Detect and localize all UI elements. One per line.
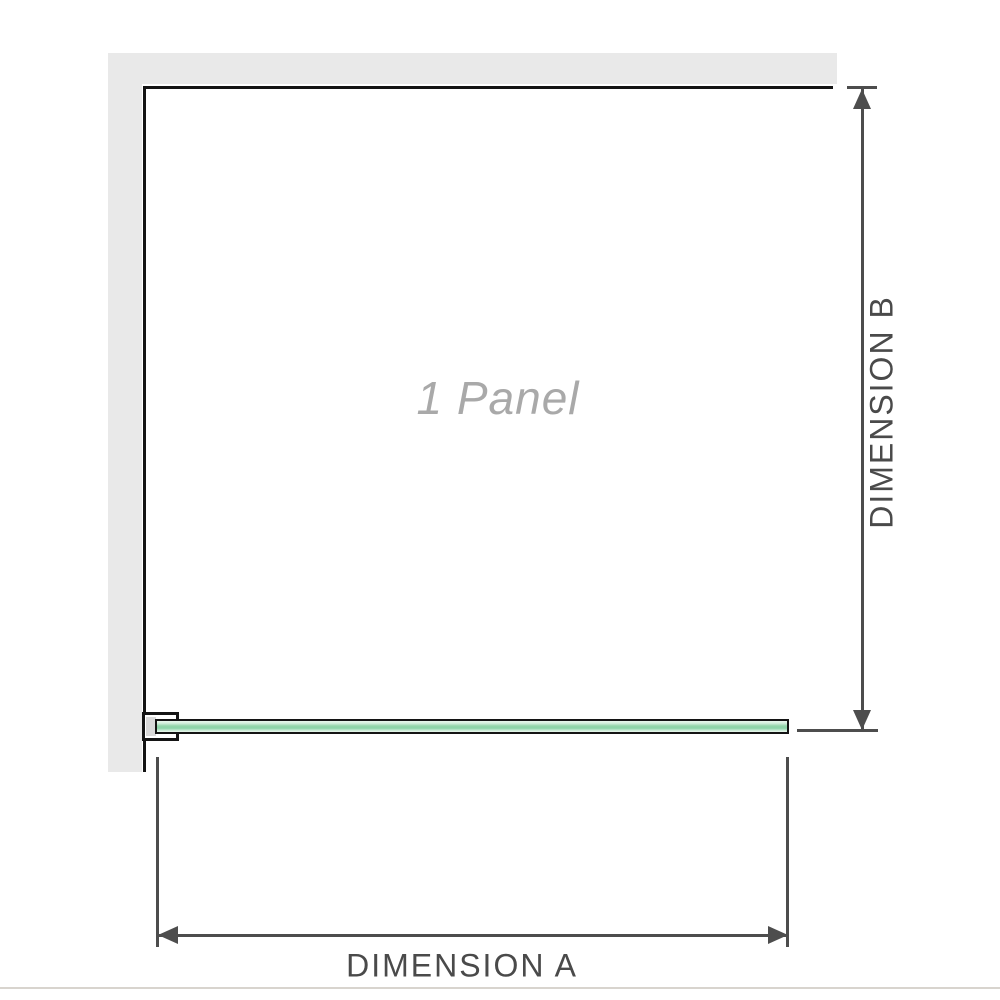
panel-dimension-diagram: 1 Panel DIMENSION B DIMENSION A (0, 0, 1000, 1000)
glass-panel-bar (155, 719, 789, 734)
arrow-up-icon (853, 89, 871, 109)
arrow-left-icon (158, 926, 178, 944)
dimension-a-label: DIMENSION A (346, 948, 578, 985)
panel-top-border (143, 86, 833, 89)
dimension-a-extension-right (786, 757, 789, 947)
dimension-a-extension-left (156, 757, 159, 947)
page-baseline (0, 987, 1000, 989)
dimension-a-line (159, 934, 787, 937)
panel-count-label: 1 Panel (416, 371, 579, 425)
panel-left-border (143, 86, 146, 772)
dimension-b-label: DIMENSION B (864, 295, 901, 529)
arrow-down-icon (853, 710, 871, 730)
wall-top-band (108, 53, 837, 84)
arrow-right-icon (768, 926, 788, 944)
wall-left-band (108, 53, 142, 772)
